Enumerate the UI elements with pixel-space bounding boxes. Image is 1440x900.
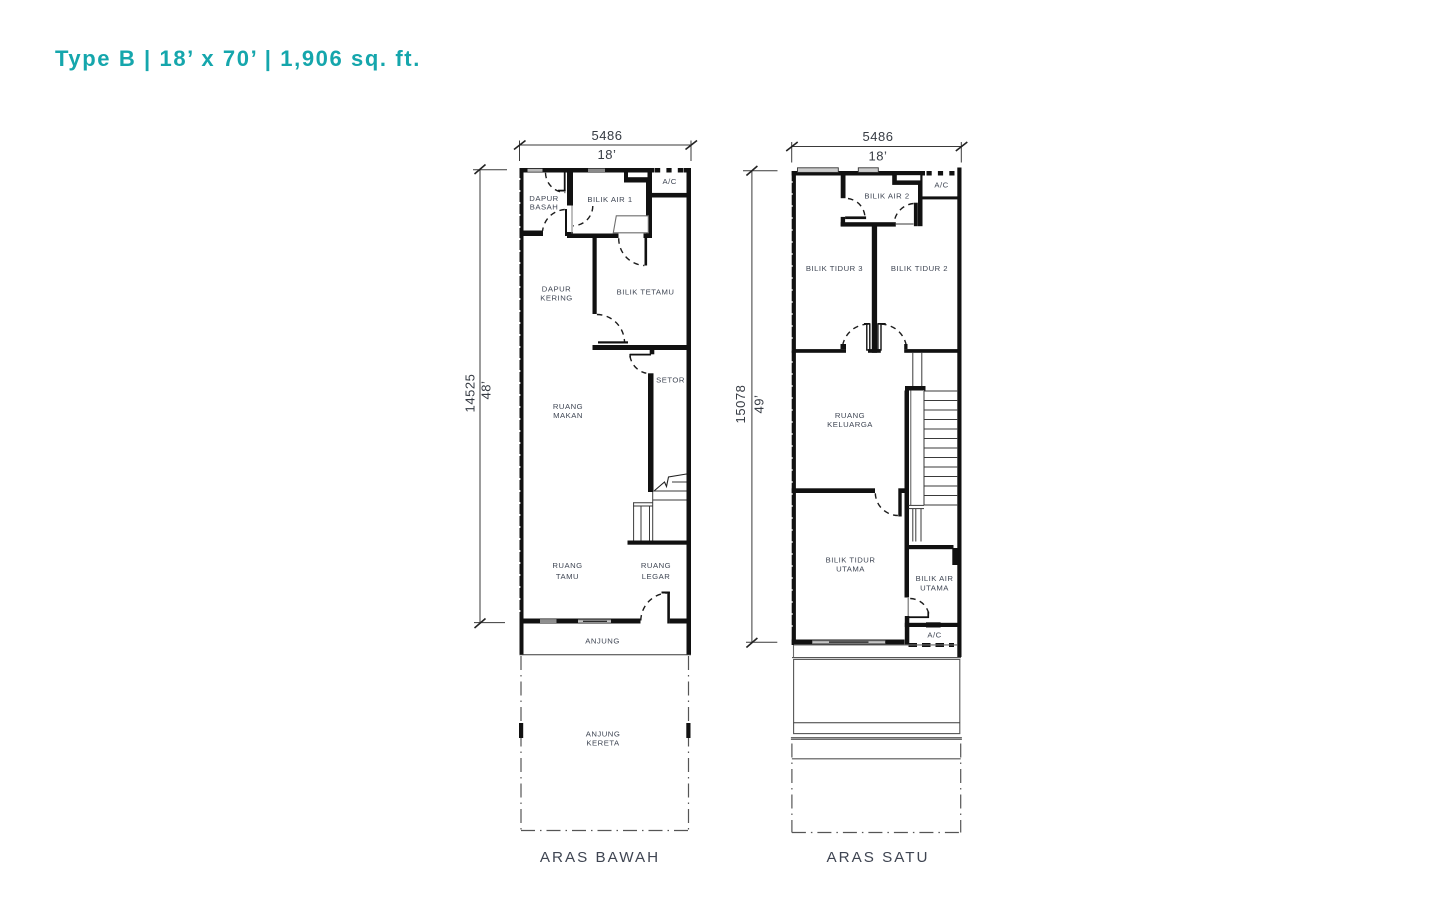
svg-text:KERETA: KERETA [586, 738, 620, 747]
svg-text:RUANG: RUANG [641, 561, 671, 570]
svg-text:DAPUR: DAPUR [542, 285, 571, 294]
svg-text:ARAS SATU: ARAS SATU [827, 849, 930, 866]
svg-text:18’: 18’ [598, 147, 617, 162]
svg-text:BILIK TETAMU: BILIK TETAMU [617, 288, 675, 297]
svg-text:UTAMA: UTAMA [836, 564, 865, 573]
svg-text:BILIK AIR 1: BILIK AIR 1 [587, 195, 632, 204]
svg-text:MAKAN: MAKAN [553, 411, 583, 420]
svg-text:14525: 14525 [463, 374, 478, 413]
svg-text:ARAS BAWAH: ARAS BAWAH [540, 849, 660, 866]
svg-text:A/C: A/C [934, 181, 948, 190]
svg-text:5486: 5486 [862, 129, 893, 144]
svg-text:KERING: KERING [540, 294, 572, 303]
svg-text:ANJUNG: ANJUNG [586, 730, 621, 739]
svg-text:5486: 5486 [591, 128, 622, 143]
svg-text:BILIK TIDUR 3: BILIK TIDUR 3 [806, 264, 863, 273]
svg-text:LEGAR: LEGAR [642, 572, 671, 581]
svg-text:KELUARGA: KELUARGA [827, 420, 873, 429]
svg-text:BILIK AIR: BILIK AIR [916, 574, 954, 583]
svg-text:BILIK TIDUR 2: BILIK TIDUR 2 [891, 264, 948, 273]
svg-text:TAMU: TAMU [556, 572, 579, 581]
svg-text:A/C: A/C [663, 177, 677, 186]
svg-text:ANJUNG: ANJUNG [585, 637, 620, 646]
svg-text:SETOR: SETOR [656, 376, 685, 385]
svg-text:15078: 15078 [733, 385, 748, 424]
svg-text:48’: 48’ [479, 381, 494, 400]
svg-text:RUANG: RUANG [835, 411, 865, 420]
svg-text:A/C: A/C [927, 631, 941, 640]
svg-text:BASAH: BASAH [530, 202, 559, 211]
svg-text:BILIK AIR 2: BILIK AIR 2 [864, 192, 909, 201]
svg-text:18’: 18’ [869, 149, 888, 164]
svg-text:RUANG: RUANG [553, 402, 583, 411]
svg-text:UTAMA: UTAMA [920, 583, 949, 592]
svg-text:RUANG: RUANG [552, 561, 582, 570]
svg-text:49’: 49’ [752, 395, 767, 414]
svg-text:BILIK TIDUR: BILIK TIDUR [826, 556, 876, 565]
svg-text:Type B | 18’ x 70’ | 1,906 sq.: Type B | 18’ x 70’ | 1,906 sq. ft. [55, 46, 421, 71]
